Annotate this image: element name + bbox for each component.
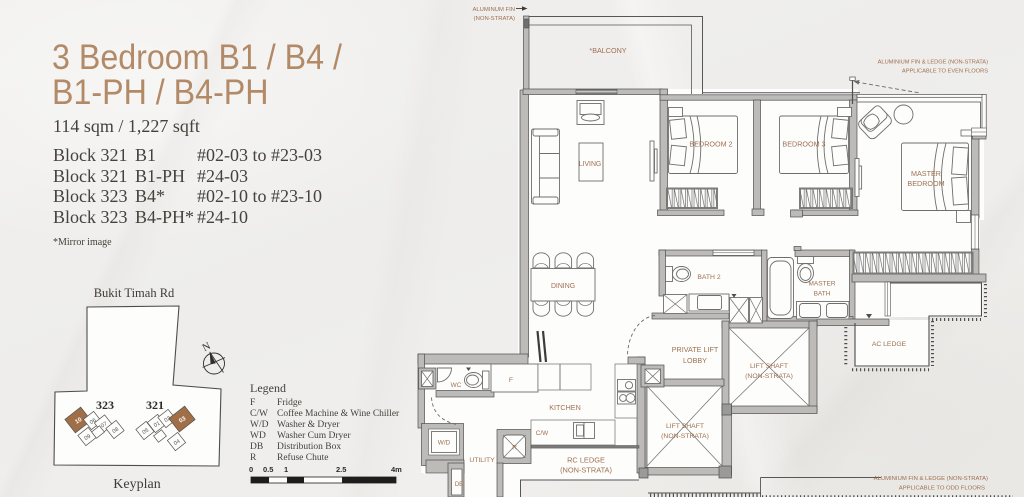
svg-text:MASTER: MASTER xyxy=(911,169,941,178)
svg-text:*BALCONY: *BALCONY xyxy=(589,46,626,55)
svg-text:APPLICABLE TO EVEN FLOORS: APPLICABLE TO EVEN FLOORS xyxy=(902,69,988,75)
svg-text:BATH: BATH xyxy=(814,291,831,298)
svg-text:BEDROOM: BEDROOM xyxy=(907,179,944,188)
svg-text:Bukit Timah Rd: Bukit Timah Rd xyxy=(94,286,175,300)
svg-text:LIFT SHAFT: LIFT SHAFT xyxy=(750,363,788,370)
svg-text:LIVING: LIVING xyxy=(579,161,602,168)
svg-text:W/D: W/D xyxy=(438,440,451,447)
svg-text:BEDROOM 2: BEDROOM 2 xyxy=(689,140,732,149)
svg-text:DB: DB xyxy=(250,442,263,452)
svg-text:C/W: C/W xyxy=(250,409,268,419)
svg-text:R: R xyxy=(512,445,517,452)
svg-text:APPLICABLE TO ODD FLOORS: APPLICABLE TO ODD FLOORS xyxy=(899,486,985,492)
svg-text:ALUMINIUM FIN & LEDGE (NON-STR: ALUMINIUM FIN & LEDGE (NON-STRATA) xyxy=(874,476,988,482)
svg-text:DB: DB xyxy=(455,482,463,488)
svg-text:RC LEDGE: RC LEDGE xyxy=(567,456,605,465)
svg-text:Refuse Chute: Refuse Chute xyxy=(277,452,328,463)
svg-text:(NON-STRATA): (NON-STRATA) xyxy=(745,373,793,380)
svg-text:1: 1 xyxy=(284,465,288,474)
svg-text:DINING: DINING xyxy=(551,283,575,290)
svg-text:MASTER: MASTER xyxy=(808,281,835,288)
svg-text:Fridge: Fridge xyxy=(277,398,302,408)
svg-text:C/W: C/W xyxy=(536,430,549,437)
svg-text:AC LEDGE: AC LEDGE xyxy=(872,341,907,348)
svg-text:Washer & Dryer: Washer & Dryer xyxy=(277,420,340,430)
svg-text:4m: 4m xyxy=(391,465,402,474)
svg-text:Legend: Legend xyxy=(250,381,286,395)
svg-text:PRIVATE LIFT: PRIVATE LIFT xyxy=(672,345,719,354)
svg-text:0: 0 xyxy=(249,465,253,474)
svg-text:2.5: 2.5 xyxy=(336,465,346,474)
svg-text:Washer Cum Dryer: Washer Cum Dryer xyxy=(277,431,351,441)
svg-text:Coffee Machine & Wine Chiller: Coffee Machine & Wine Chiller xyxy=(277,408,400,419)
svg-text:LOBBY: LOBBY xyxy=(683,356,707,365)
svg-text:321: 321 xyxy=(146,398,164,412)
svg-text:ALUMINIUM FIN & LEDGE (NON-STR: ALUMINIUM FIN & LEDGE (NON-STRATA) xyxy=(878,60,988,66)
svg-text:(NON-STRATA): (NON-STRATA) xyxy=(661,433,709,440)
svg-text:(NON-STRATA): (NON-STRATA) xyxy=(474,16,515,22)
svg-text:Keyplan: Keyplan xyxy=(113,477,160,492)
svg-text:BATH 2: BATH 2 xyxy=(697,274,721,281)
svg-text:N: N xyxy=(201,341,213,354)
svg-text:F: F xyxy=(509,377,513,384)
svg-text:W/D: W/D xyxy=(250,420,269,430)
svg-text:WD: WD xyxy=(250,431,266,441)
svg-text:R: R xyxy=(250,453,257,463)
svg-text:323: 323 xyxy=(96,398,114,412)
svg-text:F: F xyxy=(250,398,255,408)
svg-text:KITCHEN: KITCHEN xyxy=(549,403,581,412)
svg-text:Distribution Box: Distribution Box xyxy=(277,442,341,452)
svg-text:WC: WC xyxy=(451,382,462,389)
svg-text:0.5: 0.5 xyxy=(263,465,273,474)
svg-text:(NON-STRATA): (NON-STRATA) xyxy=(560,466,612,475)
svg-text:ALUMINUM FIN: ALUMINUM FIN xyxy=(472,7,515,13)
svg-text:UTILITY: UTILITY xyxy=(469,457,495,464)
svg-text:BEDROOM 3: BEDROOM 3 xyxy=(782,140,825,149)
svg-text:LIFT SHAFT: LIFT SHAFT xyxy=(666,423,704,430)
